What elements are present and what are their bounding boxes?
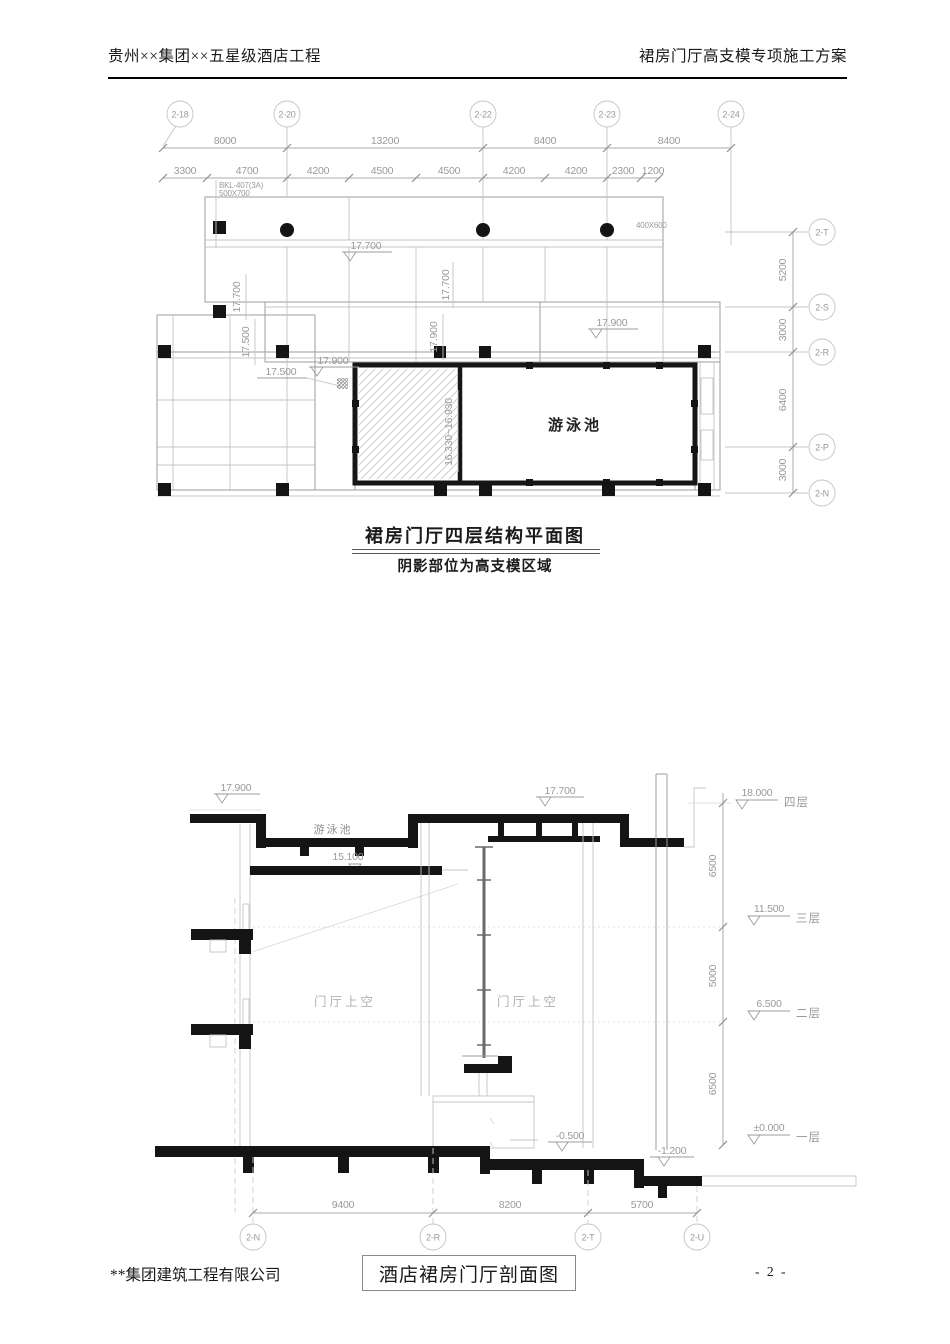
plan-title-underline <box>352 549 600 554</box>
elevation-label: -1.200 <box>658 1145 687 1157</box>
plan-drawing: 游泳池 2-18 2-20 2-22 2-23 2-24 8000 13200 … <box>100 95 860 525</box>
plan-axis-bubble: 2-20 <box>278 110 295 120</box>
header-rule <box>108 77 847 79</box>
dim-label: 2300 <box>612 165 635 177</box>
elevation-label: 17.700 <box>440 269 452 300</box>
plan-dim-row2: 3300 4700 4200 4500 4500 4200 4200 2300 … <box>159 165 665 182</box>
plan-dim-row1: 8000 13200 8400 8400 <box>159 135 735 152</box>
plan-right-axes: 5200 3000 6400 3000 2-T 2-S 2-R 2-P 2-N <box>725 219 835 506</box>
dim-label: 8400 <box>658 135 681 147</box>
plan-pool: 游泳池 <box>352 362 698 486</box>
level-floor-name: 三层 <box>796 912 821 925</box>
plan-axis-bubble: 2-N <box>815 489 829 499</box>
elevation-label: 17.900 <box>597 317 628 329</box>
dim-label: 5700 <box>631 1199 654 1211</box>
section-axis-bubble: 2-N <box>246 1233 260 1243</box>
dim-label: 4700 <box>236 165 259 177</box>
section-right-levels: 6500 5000 6500 18.000 四层 11.500 三层 6.500… <box>688 787 821 1149</box>
dim-label: 4500 <box>438 165 461 177</box>
plan-axis-bubble: 2-22 <box>474 110 491 120</box>
elevation-label: 15.100 <box>333 851 364 863</box>
plan-axis-bubble: 2-T <box>816 228 830 238</box>
dim-label: 1200 <box>642 165 665 177</box>
dim-label: 3000 <box>777 318 789 341</box>
header-project-name: 贵州××集团××五星级酒店工程 <box>108 44 321 66</box>
elevation-label: 17.500 <box>266 366 297 378</box>
dim-label: 6400 <box>777 388 789 411</box>
level-elevation: 6.500 <box>756 998 782 1010</box>
dim-label: 4200 <box>503 165 526 177</box>
void-label: 门厅上空 <box>497 994 559 1009</box>
beam-note-line2: 500X700 <box>219 189 250 198</box>
dim-label: 13200 <box>371 135 400 147</box>
plan-axis-bubble: 2-P <box>815 443 829 453</box>
elevation-label: 17.900 <box>318 355 349 367</box>
pool-elevation-range: 16.330~16.930 <box>443 398 455 466</box>
plan-pool-label: 游泳池 <box>548 416 602 434</box>
dim-label: 4500 <box>371 165 394 177</box>
plan-axis-bubble: 2-18 <box>171 110 188 120</box>
dim-label: 8400 <box>534 135 557 147</box>
plan-axis-bubble: 2-R <box>815 348 830 358</box>
dim-label: 9400 <box>332 1199 355 1211</box>
footer-drawing-title-box: 酒店裙房门厅剖面图 <box>362 1255 576 1291</box>
section-desk <box>433 1056 538 1148</box>
plan-subtitle: 阴影部位为高支模区域 <box>250 555 700 576</box>
plan-beam-note: BKL-407(3A) 500X700 400X600 <box>216 180 667 248</box>
section-ground-slab: -0.500 -1.200 <box>155 1130 856 1198</box>
elevation-label: 17.500 <box>240 326 252 357</box>
page-header: 贵州××集团××五星级酒店工程 裙房门厅高支模专项施工方案 <box>108 44 847 66</box>
level-elevation: 18.000 <box>742 787 773 799</box>
header-doc-title: 裙房门厅高支模专项施工方案 <box>639 44 847 66</box>
dim-label: 4200 <box>307 165 330 177</box>
section-roof-pool: 17.900 游泳池 15.100 17.700 <box>190 782 706 875</box>
dim-label: 5000 <box>707 964 719 987</box>
dim-label: 3000 <box>777 458 789 481</box>
level-floor-name: 二层 <box>796 1007 821 1020</box>
plan-axis-bubble: 2-24 <box>722 110 739 120</box>
section-axis-bubble: 2-U <box>690 1233 704 1243</box>
elevation-label: 17.700 <box>545 785 576 797</box>
elevation-label: 17.900 <box>221 782 252 794</box>
elevation-label: 17.700 <box>351 240 382 252</box>
footer-company: **集团建筑工程有限公司 <box>110 1263 281 1285</box>
level-floor-name: 一层 <box>796 1131 821 1144</box>
beam-size-note: 400X600 <box>636 221 667 230</box>
dim-label: 6500 <box>707 1072 719 1095</box>
dim-label: 8000 <box>214 135 237 147</box>
section-axis-bubble: 2-R <box>426 1233 441 1243</box>
elevation-label: 17.700 <box>231 281 243 312</box>
dim-label: 5200 <box>777 258 789 281</box>
level-floor-name: 四层 <box>784 796 809 809</box>
level-elevation: ±0.000 <box>754 1122 785 1134</box>
level-elevation: 11.500 <box>754 903 784 915</box>
section-drawing: 17.900 游泳池 15.100 17.700 <box>140 770 870 1255</box>
dim-label: 4200 <box>565 165 588 177</box>
section-axis-bubble: 2-T <box>582 1233 596 1243</box>
dim-label: 3300 <box>174 165 197 177</box>
plan-axis-bubble: 2-23 <box>598 110 615 120</box>
dim-label: 6500 <box>707 854 719 877</box>
footer-page-number: - 2 - <box>755 1264 788 1280</box>
elevation-label: 17.900 <box>428 321 440 352</box>
section-pool-label: 游泳池 <box>314 822 353 836</box>
elevation-label: -0.500 <box>556 1130 585 1142</box>
footer-drawing-title: 酒店裙房门厅剖面图 <box>379 1260 559 1287</box>
void-label: 门厅上空 <box>314 994 376 1009</box>
dim-label: 8200 <box>499 1199 522 1211</box>
plan-title: 裙房门厅四层结构平面图 <box>250 522 700 548</box>
plan-axis-bubble: 2-S <box>815 303 829 313</box>
section-columns <box>421 774 667 1150</box>
